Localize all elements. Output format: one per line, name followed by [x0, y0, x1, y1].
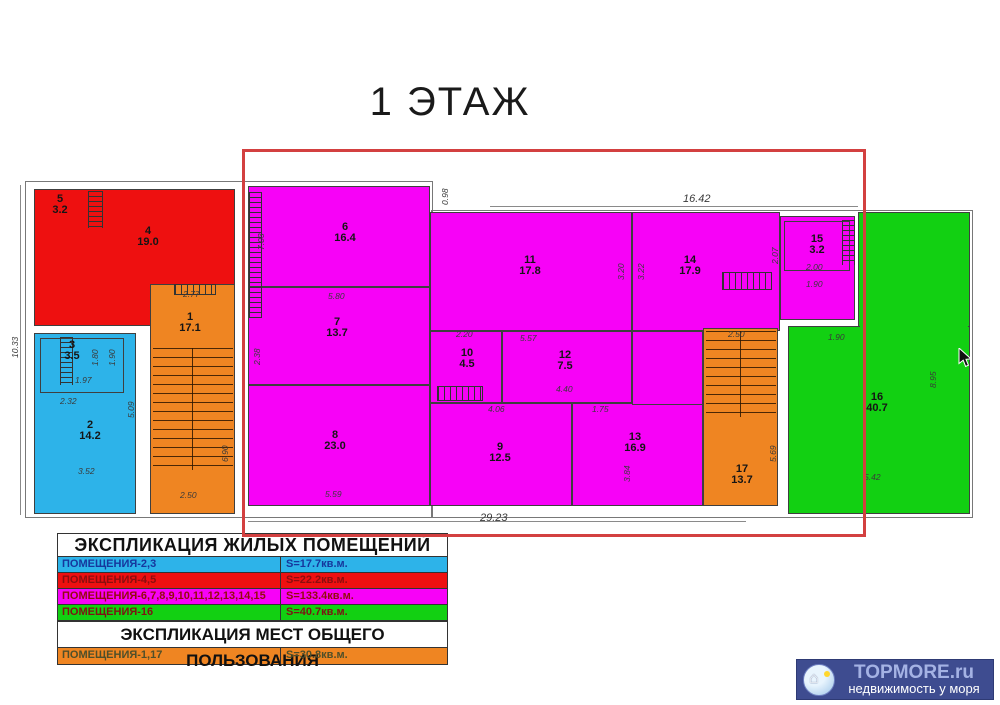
dimension-label: 8.95 [928, 371, 938, 388]
legend-row-rooms-16: ПОМЕЩЕНИЯ-16 S=40.7кв.м. [57, 605, 448, 621]
legend-row-value: S=22.2кв.м. [281, 573, 447, 588]
sun-icon [824, 671, 830, 677]
legend-row-rooms-6-15: ПОМЕЩЕНИЯ-6,7,8,9,10,11,12,13,14,15 S=13… [57, 589, 448, 605]
topmore-logo[interactable]: ⌂ TOPMORE.ru недвижимость у моря [796, 659, 994, 700]
room-label-4: 419.0 [124, 226, 172, 248]
dimension-label: 10.33 [10, 337, 20, 358]
dimension-label: 5.42 [864, 472, 881, 482]
legend-row-rooms-2-3: ПОМЕЩЕНИЯ-2,3 S=17.7кв.м. [57, 557, 448, 573]
highlight-rectangle [242, 149, 866, 537]
legend-row-label: ПОМЕЩЕНИЯ-1,17 [58, 648, 281, 664]
mouse-cursor-icon [958, 348, 972, 373]
room-16-upper [858, 212, 970, 326]
legend-row-rooms-1-17: ПОМЕЩЕНИЯ-1,17 S=30.8кв.м. [57, 648, 448, 665]
dimension-label: 2.32 [60, 396, 77, 406]
legend-row-label: ПОМЕЩЕНИЯ-2,3 [58, 557, 281, 572]
floor-plan-page: 1 ЭТАЖ 53.2 419.0 117.1 33.5 214.2 616.4… [0, 0, 1000, 705]
stairs-divider [192, 348, 193, 470]
legend-row-label: ПОМЕЩЕНИЯ-4,5 [58, 573, 281, 588]
dimension-label: 6.90 [220, 445, 230, 462]
room-label-2: 214.2 [66, 420, 114, 442]
dimension-label: 2.50 [180, 490, 197, 500]
legend-row-label: ПОМЕЩЕНИЯ-6,7,8,9,10,11,12,13,14,15 [58, 589, 281, 604]
legend-row-rooms-4-5: ПОМЕЩЕНИЯ-4,5 S=22.2кв.м. [57, 573, 448, 589]
legend-row-value: S=133.4кв.м. [281, 589, 447, 604]
logo-brand: TOPMORE.ru [854, 663, 974, 682]
dimension-line [20, 185, 21, 515]
room-label-1: 117.1 [166, 312, 214, 334]
logo-house-icon: ⌂ [803, 664, 835, 696]
dimension-label: 5.09 [126, 401, 136, 418]
room-label-3: 33.5 [48, 340, 96, 362]
dimension-label: 2.77 [183, 289, 200, 299]
room-16-join [860, 324, 968, 329]
legend-row-value: S=30.8кв.м. [281, 648, 447, 664]
wall-hatch [88, 191, 103, 228]
legend-row-value: S=17.7кв.м. [281, 557, 447, 572]
dimension-label: 1.90 [107, 349, 117, 366]
legend-row-label: ПОМЕЩЕНИЯ-16 [58, 605, 281, 620]
page-title: 1 ЭТАЖ [280, 80, 620, 125]
dimension-label: 3.52 [78, 466, 95, 476]
legend: ЭКСПЛИКАЦИЯ ЖИЛЫХ ПОМЕЩЕНИЙ ПОМЕЩЕНИЯ-2,… [57, 533, 448, 665]
room-label-5: 53.2 [36, 194, 84, 216]
dimension-label: 1.97 [75, 375, 92, 385]
logo-tagline: недвижимость у моря [848, 682, 979, 696]
dimension-label: 1.80 [90, 349, 100, 366]
legend-row-value: S=40.7кв.м. [281, 605, 447, 620]
legend-title-common: ЭКСПЛИКАЦИЯ МЕСТ ОБЩЕГО ПОЛЬЗОВАНИЯ [57, 621, 448, 648]
